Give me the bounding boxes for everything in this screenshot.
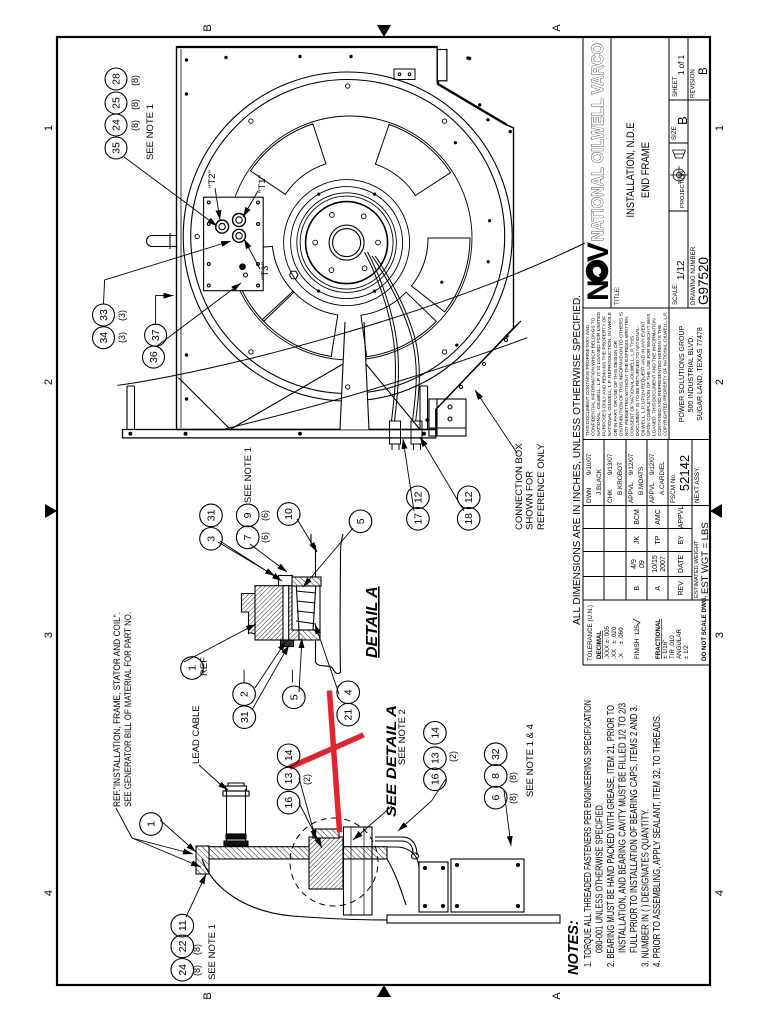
svg-text:B.MOATS: B.MOATS [638, 467, 645, 495]
svg-text:END FRAME: END FRAME [640, 142, 652, 198]
svg-text:POWER SOLUTIONS GROUP: POWER SOLUTIONS GROUP [679, 325, 686, 422]
svg-text:(2): (2) [302, 774, 312, 785]
svg-text:2: 2 [239, 691, 251, 697]
svg-text:9/10/07: 9/10/07 [586, 453, 593, 475]
svg-text:FRACTIONAL: FRACTIONAL [655, 619, 662, 659]
svg-text:(8): (8) [192, 965, 202, 976]
svg-text:COPYRIGHTED PROPERTY OF NATION: COPYRIGHTED PROPERTY OF NATIONAL-OILWELL… [663, 312, 669, 436]
svg-text:B: B [698, 67, 710, 75]
svg-text:SHOWN FOR: SHOWN FOR [525, 471, 536, 530]
svg-text:13: 13 [283, 773, 295, 785]
svg-text:SEE NOTE 1: SEE NOTE 1 [243, 447, 254, 503]
svg-text:5: 5 [355, 518, 367, 524]
svg-text:CONFIDENTIAL INFORMATION WHICH: CONFIDENTIAL INFORMATION WHICH BELONGS T… [591, 317, 597, 436]
svg-text:A.CARDIEL: A.CARDIEL [659, 461, 666, 495]
svg-text:NOTES:: NOTES: [566, 920, 582, 975]
svg-text:2007: 2007 [660, 556, 667, 572]
svg-text:"T1": "T1" [257, 175, 268, 193]
svg-text:BCM: BCM [634, 509, 641, 525]
svg-text:4. PRIOR TO ASSEMBLING, APPLY: 4. PRIOR TO ASSEMBLING, APPLY SEALANT, I… [652, 714, 663, 967]
svg-text:INSTALLATION, N.D.E: INSTALLATION, N.D.E [625, 123, 637, 218]
svg-text:REF: REF [199, 657, 210, 676]
svg-text:± 1/2: ± 1/2 [683, 645, 690, 659]
svg-text:ANGULAR: ANGULAR [676, 629, 683, 659]
svg-text:SIZE: SIZE [671, 126, 678, 140]
svg-text:(2): (2) [448, 751, 458, 762]
svg-text:35: 35 [111, 142, 123, 154]
svg-text:25: 25 [111, 97, 123, 109]
svg-text:DWN: DWN [586, 487, 593, 503]
svg-text:DO NOT SCALE DWG.: DO NOT SCALE DWG. [701, 595, 708, 661]
svg-text:2. BEARING MUST BE HAND PACKED: 2. BEARING MUST BE HAND PACKED WITH GREA… [606, 705, 617, 967]
svg-text:SHEET: SHEET [672, 76, 679, 97]
svg-text:SEE NOTE 1 & 4: SEE NOTE 1 & 4 [525, 724, 536, 797]
svg-text:21: 21 [343, 709, 355, 721]
svg-text:NATIONAL-OILWELL, L.P. REPRODU: NATIONAL-OILWELL, L.P. REPRODUCTION, IN … [607, 312, 613, 436]
svg-text:(8): (8) [130, 99, 140, 110]
svg-text:N: N [582, 279, 615, 301]
svg-text:4: 4 [343, 689, 355, 695]
svg-text:DATE: DATE [678, 555, 685, 573]
svg-text:32: 32 [490, 748, 502, 760]
svg-text:12: 12 [463, 491, 475, 503]
svg-text:.XXX ± .005: .XXX ± .005 [604, 625, 611, 659]
svg-text:14: 14 [283, 749, 295, 761]
svg-text:APPVL: APPVL [649, 482, 656, 503]
svg-text:LOANED. THIS DOCUMENT AND THE: LOANED. THIS DOCUMENT AND THE INFORMATIO… [652, 318, 658, 436]
svg-text:.X ± .060: .X ± .060 [618, 627, 625, 659]
svg-text:LEAD CABLE: LEAD CABLE [191, 705, 202, 764]
svg-text:1: 1 [43, 125, 55, 131]
svg-text:2: 2 [43, 379, 55, 385]
svg-text:(8): (8) [130, 75, 140, 86]
svg-text:33: 33 [98, 309, 110, 321]
svg-text:10: 10 [283, 508, 295, 520]
svg-text:31: 31 [206, 509, 218, 521]
svg-text:TITLE:: TITLE: [614, 286, 621, 305]
svg-text:FULL PRIOR TO INSTALLATION OF: FULL PRIOR TO INSTALLATION OF BEARING CA… [629, 705, 640, 953]
svg-text:REFERENCE ONLY: REFERENCE ONLY [536, 443, 547, 530]
svg-text:10/15: 10/15 [652, 555, 659, 573]
svg-text:24: 24 [111, 119, 123, 131]
svg-text:(6): (6) [260, 532, 270, 543]
svg-text:17: 17 [412, 513, 424, 525]
svg-text:4: 4 [714, 890, 726, 896]
svg-text:APPVL: APPVL [628, 482, 635, 503]
svg-text:11: 11 [177, 920, 189, 931]
svg-text:(3): (3) [117, 310, 127, 321]
svg-text:SUGAR LAND, TEXAS 77478: SUGAR LAND, TEXAS 77478 [697, 327, 704, 421]
svg-text:CONSENT OF NATIONAL-OILWELL, L: CONSENT OF NATIONAL-OILWELL, L.P. THIS [629, 336, 635, 436]
svg-text:NOT PERMITTED WITHOUT THE EXPR: NOT PERMITTED WITHOUT THE EXPRESS WRITTE… [624, 316, 630, 436]
svg-text:4: 4 [43, 890, 55, 896]
svg-text:14: 14 [429, 727, 441, 739]
svg-text:SEE GENERATOR BILL OF MATERIAL: SEE GENERATOR BILL OF MATERIAL FOR PART … [123, 612, 134, 807]
svg-text:36: 36 [148, 351, 160, 363]
svg-text:B.KROBOT: B.KROBOT [617, 462, 624, 495]
svg-text:24: 24 [177, 964, 189, 976]
svg-text:(8): (8) [130, 120, 140, 131]
svg-text:BY: BY [678, 535, 685, 545]
svg-text:REF."INSTALLATION, FRAME, STAT: REF."INSTALLATION, FRAME, STATOR AND COI… [112, 612, 123, 807]
svg-text:CHK: CHK [607, 489, 614, 503]
svg-text:16: 16 [283, 797, 295, 809]
svg-text:AMC: AMC [655, 509, 662, 525]
svg-text:A: A [551, 992, 563, 1000]
svg-text:28: 28 [111, 73, 123, 85]
svg-text:ALL DIMENSIONS ARE IN INCHES,: ALL DIMENSIONS ARE IN INCHES, UNLESS OTH… [572, 295, 583, 625]
svg-text:22: 22 [177, 940, 189, 952]
svg-text:3: 3 [43, 632, 55, 638]
svg-text:080-001 UNLESS OTHERWISE SPECI: 080-001 UNLESS OTHERWISE SPECIFIED. [595, 803, 606, 953]
svg-text:B: B [634, 586, 641, 591]
svg-text:FINISH 125: FINISH 125 [634, 624, 641, 659]
svg-text:9: 9 [242, 512, 254, 518]
svg-text:1: 1 [187, 665, 199, 671]
svg-text:UPON COMPLETION OF THE USE FOR: UPON COMPLETION OF THE USE FOR WHICH IT … [646, 314, 652, 436]
svg-text:3. NUMBER IN ( ) DESIGNATES QU: 3. NUMBER IN ( ) DESIGNATES QUANTITY. [641, 809, 652, 967]
svg-text:9/13/07: 9/13/07 [607, 453, 614, 475]
svg-text:8: 8 [490, 773, 502, 779]
svg-text:1 of 1: 1 of 1 [677, 54, 686, 75]
svg-text:9/12/07: 9/12/07 [649, 453, 656, 475]
svg-text:"T3": "T3" [260, 262, 271, 280]
svg-text:2: 2 [714, 379, 726, 385]
svg-text:(8): (8) [508, 793, 518, 804]
svg-text:34: 34 [98, 332, 110, 344]
svg-text:PURPOSES ONLY AND REMAINS THE: PURPOSES ONLY AND REMAINS THE PROPERTY O… [602, 316, 608, 436]
svg-text:± 1/16": ± 1/16" [662, 640, 669, 659]
svg-text:1/12: 1/12 [676, 260, 687, 280]
svg-text:CONTAINED AND REPRESENTED HERE: CONTAINED AND REPRESENTED HEREIN IS THE [657, 325, 663, 436]
svg-text:CONNECTION BOX: CONNECTION BOX [514, 443, 525, 530]
svg-text:J.BLACK: J.BLACK [596, 468, 603, 495]
svg-text:DOCUMENT IS TO BE RETURNED TO: DOCUMENT IS TO BE RETURNED TO NATIONAL- [635, 325, 641, 436]
svg-text:1: 1 [146, 821, 158, 827]
svg-text:1. TORQUE ALL THREADED FASTENE: 1. TORQUE ALL THREADED FASTENERS PER ENG… [583, 700, 594, 967]
svg-text:INSTALLATION, AND BEARING CAVI: INSTALLATION, AND BEARING CAVITY MUST BE… [618, 703, 629, 953]
svg-text:A: A [655, 586, 662, 591]
svg-text:B: B [202, 992, 214, 999]
svg-text:THIS DOCUMENT CONTAINS PROPRIE: THIS DOCUMENT CONTAINS PROPRIETARY AND [585, 324, 591, 436]
svg-text:G97520: G97520 [696, 257, 711, 305]
svg-text:500 INDUSTRIAL BLVD.: 500 INDUSTRIAL BLVD. [688, 336, 695, 413]
svg-text:TIR .010: TIR .010 [669, 635, 676, 659]
svg-text:TP: TP [655, 535, 662, 544]
svg-text:V: V [582, 242, 615, 262]
svg-text:DISTRIBUTION OF THIS INFORMATI: DISTRIBUTION OF THIS INFORMATION TO OTHE… [618, 312, 624, 436]
svg-text:B: B [675, 116, 690, 125]
svg-text:(3): (3) [117, 332, 127, 343]
svg-text:SCALE:: SCALE: [672, 283, 679, 305]
svg-text:SEE DETAIL A: SEE DETAIL A [383, 705, 399, 817]
svg-text:NATIONAL OILWELL VARCO: NATIONAL OILWELL VARCO [589, 43, 607, 241]
svg-text:A: A [551, 24, 563, 32]
svg-text:FSCM No.: FSCM No. [670, 473, 677, 503]
svg-text:"T2": "T2" [207, 170, 218, 188]
svg-text:DETAIL A: DETAIL A [364, 586, 381, 658]
svg-text:4/9: 4/9 [631, 559, 638, 569]
svg-text:5: 5 [288, 694, 300, 700]
svg-text:JK: JK [634, 536, 641, 545]
svg-text:DECIMAL: DECIMAL [596, 631, 603, 659]
svg-text:OR IN PART, OR USE OF THIS DES: OR IN PART, OR USE OF THIS DESIGN OR [613, 340, 619, 436]
svg-text:13: 13 [429, 752, 441, 764]
svg-text:SEE NOTE 1: SEE NOTE 1 [207, 924, 218, 980]
svg-text:(6): (6) [260, 510, 270, 521]
svg-text:B: B [202, 24, 214, 31]
svg-text:(8): (8) [508, 772, 518, 783]
svg-text:16: 16 [429, 773, 441, 785]
svg-text:REV: REV [678, 581, 685, 596]
svg-text:SEE NOTE 1: SEE NOTE 1 [145, 104, 156, 160]
svg-text:18: 18 [463, 513, 475, 525]
svg-text:7: 7 [242, 534, 254, 540]
svg-text:EST WGT = LBS: EST WGT = LBS [700, 522, 711, 594]
svg-text:31: 31 [239, 711, 251, 723]
svg-text:9/12/07: 9/12/07 [628, 453, 635, 475]
svg-text:(8): (8) [192, 944, 202, 955]
svg-text:OILWELL, L.P. UPON REQUEST AND: OILWELL, L.P. UPON REQUEST AND IN ANY EV… [641, 321, 647, 436]
svg-text:.XX ± .020: .XX ± .020 [611, 626, 618, 659]
svg-text:TOLERANCE (U.N.): TOLERANCE (U.N.) [587, 605, 594, 661]
svg-text:3: 3 [714, 632, 726, 638]
svg-text:52142: 52142 [677, 455, 692, 491]
svg-text:1: 1 [714, 125, 726, 131]
svg-text:6: 6 [490, 795, 502, 801]
svg-text:REVISION: REVISION [691, 69, 697, 98]
svg-text:12: 12 [412, 491, 424, 503]
svg-text:APPVL: APPVL [678, 506, 685, 529]
svg-text:NEXT ASSY.: NEXT ASSY. [694, 466, 701, 503]
svg-text:NATIONAL- OILWELL, L.P. IT IS: NATIONAL- OILWELL, L.P. IT IS LOANED FOR… [596, 311, 602, 436]
svg-text:37: 37 [150, 329, 162, 341]
svg-text:3: 3 [206, 536, 218, 542]
svg-text:09: 09 [639, 560, 646, 568]
